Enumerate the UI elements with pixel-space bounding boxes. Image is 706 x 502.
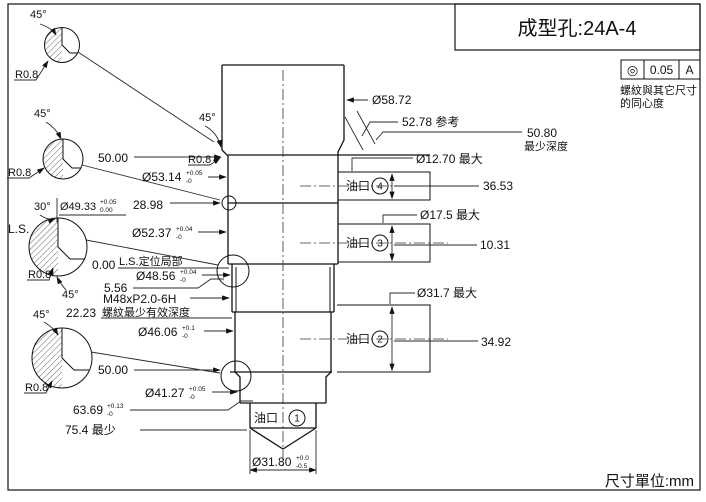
dim-46-06-tol-top: +0.1 <box>182 325 195 332</box>
dim-31-80-tol-top: +0.0 <box>296 455 309 462</box>
dim-52-37: Ø52.37 <box>132 226 172 240</box>
dim-31-80-tol-bot: -0.5 <box>296 463 308 470</box>
drawing-title: 成型孔:24A-4 <box>518 17 637 40</box>
detail-circle-top <box>45 28 80 63</box>
part-outline <box>222 65 430 449</box>
dim-41-27-tol-top: +0.05 <box>189 386 206 393</box>
edge-marker-circles <box>217 196 251 391</box>
fcf-note-line2: 的同心度 <box>620 96 664 110</box>
dim-63-69-tol-bot: -0 <box>107 411 113 418</box>
angle-45-detail-lower: 45° <box>33 309 50 321</box>
dim-28-98: 28.98 <box>133 198 163 212</box>
radius-label-detail-upper: R0.8 <box>8 167 31 179</box>
dim-63-69-tol-top: +0.13 <box>107 403 124 410</box>
cavity-drawing: 成型孔:24A-4 尺寸單位:mm ◎ 0.05 A 螺紋與其它尺寸 的同心度 <box>0 0 706 502</box>
dim-12-70-max: Ø12.70 最大 <box>416 152 483 166</box>
dim-52-78-ref: 52.78 参考 <box>402 114 459 129</box>
dim-41-27-tol-bot: -0 <box>189 394 195 401</box>
dim-49-33-tol-bot: 0.00 <box>100 207 113 214</box>
thread-spec: M48xP2.0-6H <box>103 292 176 306</box>
dim-53-14: Ø53.14 <box>142 170 182 184</box>
dim-0-00: 0.00 <box>92 258 116 272</box>
dim-52-37-tol-bot: -0 <box>176 234 182 241</box>
dim-17-5-max: Ø17.5 最大 <box>420 208 480 222</box>
port-4-text: 油口 <box>346 179 370 193</box>
dim-63-69: 63.69 <box>73 403 103 417</box>
dim-48-56: Ø48.56 <box>136 269 176 283</box>
dim-53-14-tol-bot: -0 <box>186 178 192 185</box>
port-3-text: 油口 <box>346 236 370 250</box>
dim-48-56-tol-bot: -0 <box>180 277 186 284</box>
ls-local-label: L.S.定位局部 <box>119 254 183 268</box>
dim-10-31: 10.31 <box>480 238 510 252</box>
port-1-text: 油口 <box>254 411 278 425</box>
fcf-tolerance: 0.05 <box>650 63 674 77</box>
dim-31-80: Ø31.80 <box>252 455 292 469</box>
angle-45-detail-ls: 45° <box>62 289 79 301</box>
dim-49-33-tol-top: +0.05 <box>100 199 117 206</box>
concentricity-icon: ◎ <box>627 63 638 78</box>
dim-75-4-min: 75.4 最少 <box>65 423 116 437</box>
detail-circle-upper <box>43 139 83 179</box>
dim-46-06-tol-bot: -0 <box>182 333 188 340</box>
units-note: 尺寸單位:mm <box>605 473 694 490</box>
dim-50-00-top: 50.00 <box>98 151 128 165</box>
port-2-text: 油口 <box>346 332 370 346</box>
dim-50-00-bottom: 50.00 <box>98 363 128 377</box>
port-label-1: 油口 1 <box>254 410 305 426</box>
port-1-number: 1 <box>294 414 300 425</box>
port-label-2: 油口 2 <box>346 331 388 347</box>
port-label-4: 油口 4 <box>346 178 388 194</box>
dim-34-92: 34.92 <box>481 335 511 349</box>
radius-label-edge: R0.8 <box>188 154 211 166</box>
detail-circle-ls <box>29 218 87 276</box>
ls-label: L.S. <box>8 222 29 236</box>
dim-36-53: 36.53 <box>483 179 513 193</box>
port-3-number: 3 <box>377 239 383 250</box>
dim-22-23: 22.23 <box>66 306 96 320</box>
drawing-sheet: 成型孔:24A-4 尺寸單位:mm ◎ 0.05 A 螺紋與其它尺寸 的同心度 <box>0 0 706 502</box>
radius-label-detail-top: R0.8 <box>15 69 38 81</box>
dim-52-37-tol-top: +0.04 <box>176 226 193 233</box>
dim-48-56-tol-top: +0.04 <box>180 269 197 276</box>
angle-30: 30° <box>34 201 51 213</box>
port-label-3: 油口 3 <box>346 235 388 251</box>
dim-53-14-tol-top: +0.05 <box>186 170 203 177</box>
dim-58-72: Ø58.72 <box>372 93 412 107</box>
dim-49-33: Ø49.33 <box>60 201 96 213</box>
feature-control-frame: ◎ 0.05 A 螺紋與其它尺寸 的同心度 <box>620 60 700 110</box>
detail-circle-lower <box>32 328 92 388</box>
port-4-number: 4 <box>377 182 383 193</box>
dim-50-80: 50.80 <box>527 126 557 140</box>
angle-45-detail-upper: 45° <box>34 108 51 120</box>
dim-31-7-max: Ø31.7 最大 <box>417 286 477 300</box>
angle-45-edge: 45° <box>199 112 216 124</box>
radius-label-detail-lower: R0.8 <box>25 382 48 394</box>
fcf-note-line1: 螺紋與其它尺寸 <box>620 83 697 97</box>
fcf-datum: A <box>685 63 693 77</box>
angle-45-detail-top: 45° <box>30 9 47 21</box>
radius-label-detail-ls: R0.8 <box>28 269 51 281</box>
dim-50-80-note: 最少深度 <box>524 139 568 153</box>
thread-depth-note: 螺紋最少有效深度 <box>102 305 190 319</box>
dim-46-06: Ø46.06 <box>138 325 178 339</box>
port-2-number: 2 <box>377 335 383 346</box>
breakout-marks <box>345 111 375 150</box>
dim-41-27: Ø41.27 <box>145 386 185 400</box>
